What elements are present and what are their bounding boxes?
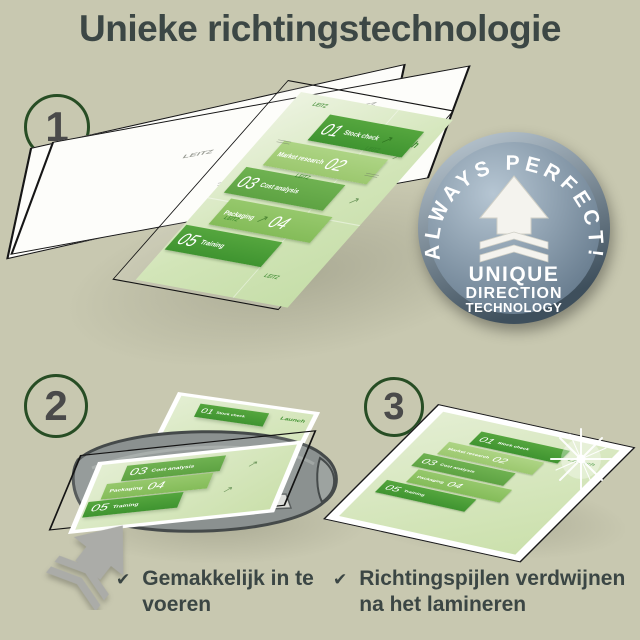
feed-direction-arrow-icon <box>36 512 154 610</box>
brand-watermark: LEITZ <box>182 149 214 160</box>
band-label: Stock check <box>496 441 530 451</box>
band-label: Packaging <box>416 475 446 484</box>
direction-arrow-icon: ↗ <box>246 459 260 470</box>
direction-arrow-icon: ↗ <box>221 484 235 495</box>
product-infographic: Unieke richtingstechnologie 1 ↗ LEITZ ↗ … <box>0 0 640 640</box>
band-label: Training <box>198 238 227 249</box>
band-label: Stock check <box>341 129 381 142</box>
badge-line-unique: UNIQUE <box>469 263 560 286</box>
band-number: 03 <box>419 457 439 466</box>
caption-arrows-disappear: ✔ Richtingspijlen verdwijnen na het lami… <box>333 566 628 617</box>
brand-watermark: LEITZ <box>311 102 329 110</box>
band-label: Market research <box>447 448 491 460</box>
band-number: 05 <box>174 230 204 248</box>
band-label: Cost analysis <box>439 463 476 473</box>
band-number: 03 <box>233 173 263 191</box>
brand-watermark: LEITZ <box>262 273 280 281</box>
always-perfect-badge: ALWAYS PERFECT! UNIQUE DIRECTION TECHNOL… <box>414 128 614 328</box>
band-label: Cost analysis <box>258 181 302 195</box>
band-number: 05 <box>383 484 403 493</box>
band-number: 02 <box>490 456 510 465</box>
caption-text: Gemakkelijk in te voeren <box>142 566 351 617</box>
band-label: Training <box>402 490 426 497</box>
band-label: Packaging <box>109 486 144 494</box>
direction-arrow-icon: ↗ <box>345 194 364 208</box>
check-icon: ✔ <box>333 571 347 617</box>
badge-line-technology: TECHNOLOGY <box>466 300 563 315</box>
page-title: Unieke richtingstechnologie <box>0 8 640 50</box>
caption-text: Richtingspijlen verdwijnen na het lamine… <box>359 566 628 617</box>
band-number: 04 <box>145 481 166 492</box>
band-label: Market research <box>275 150 326 165</box>
band-number: 01 <box>317 121 347 139</box>
band-number: 04 <box>445 480 465 489</box>
band-label: Cost analysis <box>151 464 196 473</box>
band-label: Training <box>112 502 140 509</box>
step-3-number: 3 <box>383 386 404 429</box>
band-number: 03 <box>128 466 149 477</box>
band-number: 01 <box>477 436 497 445</box>
shine-sparkle-icon <box>548 426 614 492</box>
